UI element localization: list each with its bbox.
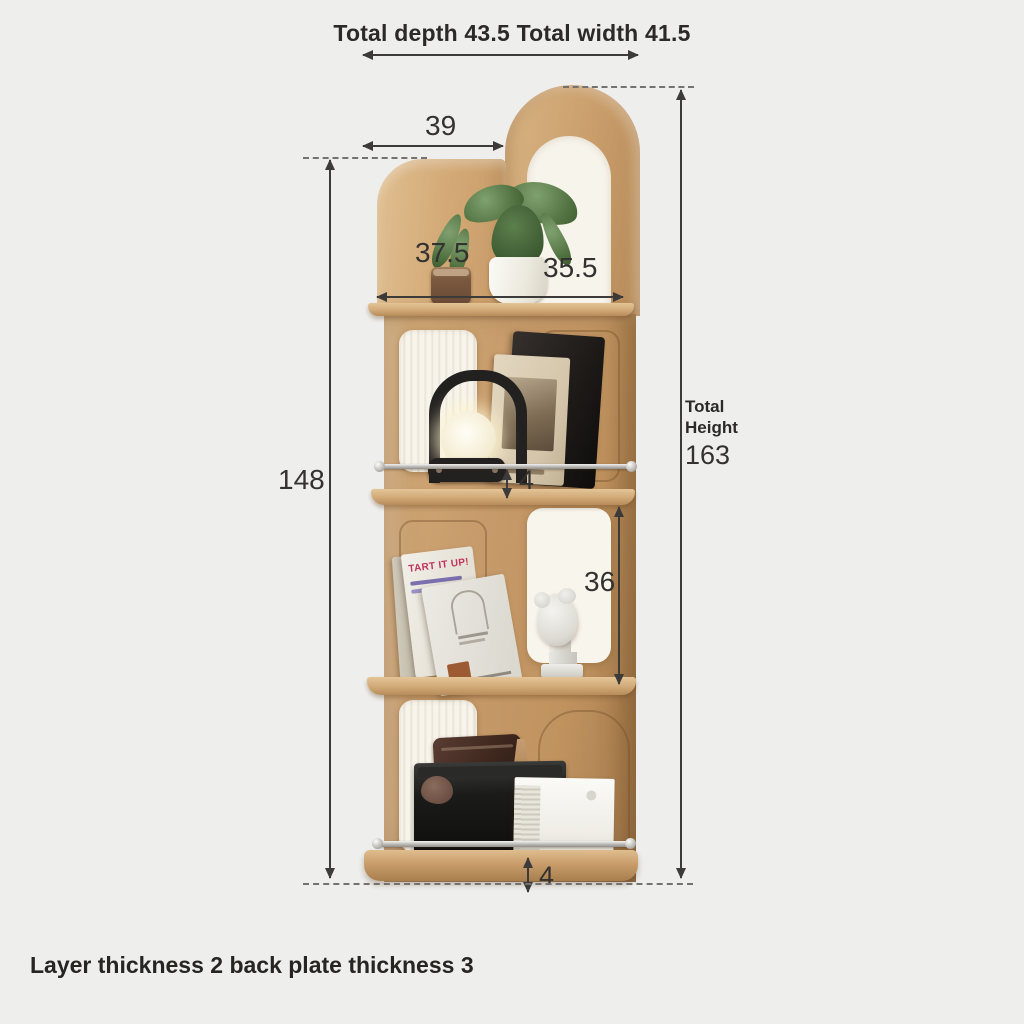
dim-4-lower-arrow-icon (527, 858, 529, 892)
dim-4-upper-arrow-icon (506, 470, 508, 498)
rail-ball (625, 838, 636, 849)
bust-curl (534, 592, 550, 608)
dim-36-label: 36 (584, 566, 615, 598)
extension-dash-top-right (563, 86, 694, 88)
shelf-board-3 (367, 677, 636, 695)
base-plinth (364, 850, 638, 881)
dim-35-5-label: 35.5 (543, 252, 598, 284)
total-width-arrow-icon (363, 54, 638, 56)
total-height-arrow-icon (680, 90, 682, 878)
lamp-base (428, 458, 506, 482)
bust-curl (558, 588, 576, 604)
dim-39-arrow-icon (363, 145, 503, 147)
total-height-label: Total Height (685, 396, 749, 439)
thickness-note: Layer thickness 2 back plate thickness 3 (30, 952, 474, 979)
dim-37-5-label: 37.5 (415, 237, 470, 269)
dim-4-upper-label: 4 (519, 465, 534, 496)
total-height-value: 163 (685, 440, 730, 471)
shelf-board-1 (368, 303, 634, 316)
pom-pom (421, 776, 453, 804)
dim-36-arrow-icon (618, 507, 620, 684)
rail-ball (372, 838, 383, 849)
extension-dash-bottom (303, 883, 693, 885)
dim-4-lower-label: 4 (539, 861, 554, 892)
extension-dash-top-left (303, 157, 427, 159)
bust-base (541, 664, 583, 678)
book-title: TART IT UP! (408, 556, 471, 574)
candle-jar (431, 267, 471, 304)
product-dimension-diagram: TART IT UP! Totelife Total depth 43.5 To… (0, 0, 1024, 1024)
rail-ball (626, 461, 637, 472)
rail-ball (374, 461, 385, 472)
dim-148-arrow-icon (329, 160, 331, 878)
dim-148-label: 148 (278, 464, 325, 496)
total-size-title: Total depth 43.5 Total width 41.5 (0, 20, 1024, 47)
dim-39-label: 39 (425, 110, 456, 142)
guard-rail-lower (375, 841, 633, 847)
shelf-depth-arrow-icon (377, 296, 623, 298)
